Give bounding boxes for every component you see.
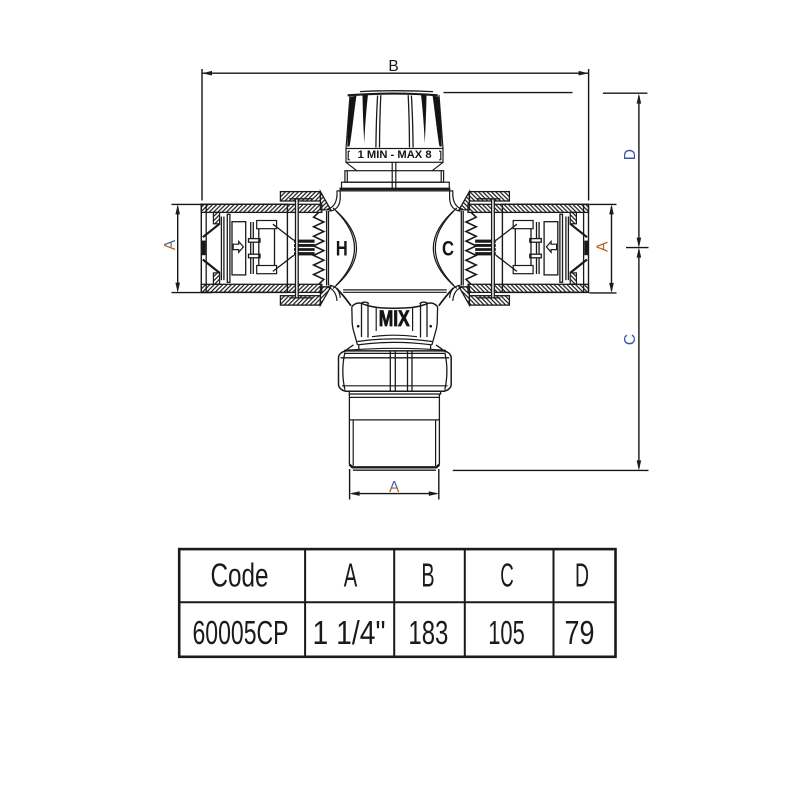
svg-text:C: C	[442, 238, 454, 261]
svg-text:A: A	[389, 479, 400, 496]
svg-text:Code: Code	[211, 557, 269, 594]
svg-text:A: A	[344, 557, 358, 594]
svg-text:183: 183	[408, 614, 448, 651]
svg-text:C: C	[500, 557, 514, 594]
svg-text:C: C	[622, 334, 639, 345]
svg-text:A: A	[162, 239, 179, 250]
svg-text:A: A	[595, 241, 612, 252]
svg-text:B: B	[388, 58, 398, 75]
svg-text:H: H	[336, 238, 348, 261]
svg-text:D: D	[575, 557, 589, 594]
svg-text:1 1/4": 1 1/4"	[313, 614, 386, 651]
svg-text:D: D	[622, 149, 639, 160]
svg-text:79: 79	[565, 614, 595, 651]
svg-text:B: B	[421, 557, 434, 594]
svg-text:105: 105	[488, 614, 525, 651]
svg-text:1 MIN - MAX 8: 1 MIN - MAX 8	[358, 149, 432, 161]
svg-text:MIX: MIX	[379, 306, 410, 331]
svg-text:60005CP: 60005CP	[193, 614, 289, 651]
